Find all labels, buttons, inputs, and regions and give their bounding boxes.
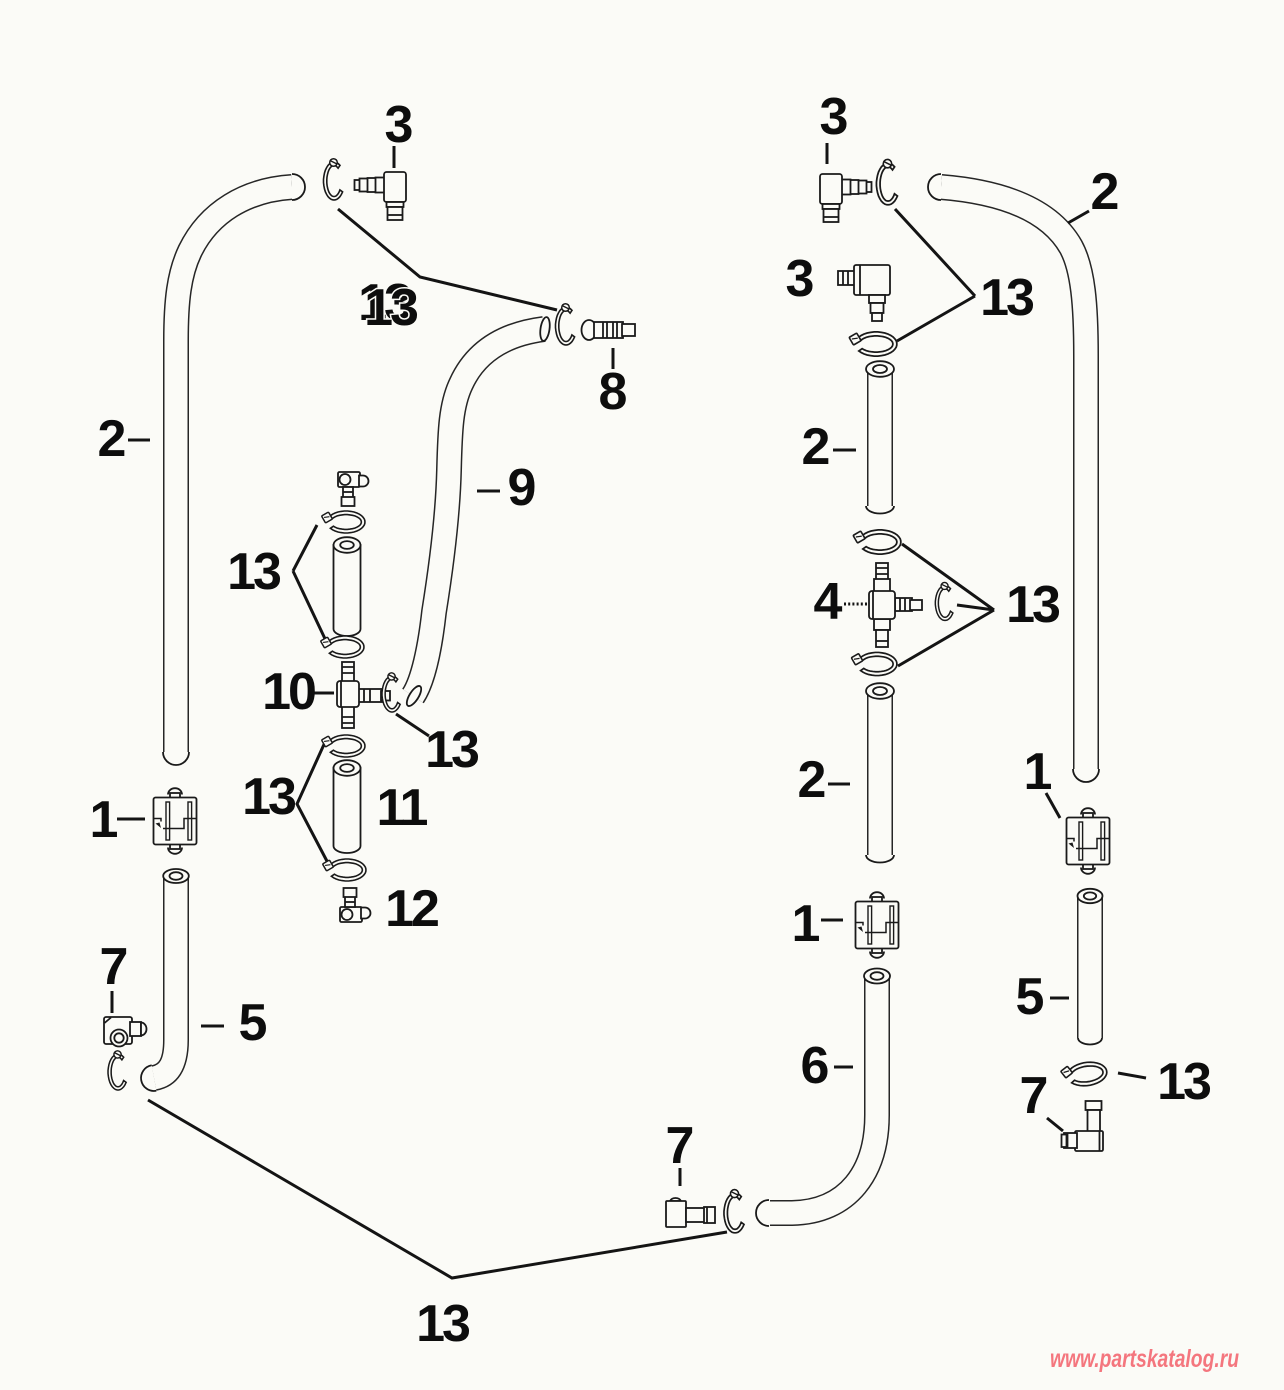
svg-text:1: 1 xyxy=(1024,743,1053,801)
svg-text:3: 3 xyxy=(385,96,414,154)
svg-text:6: 6 xyxy=(801,1037,830,1095)
svg-text:2: 2 xyxy=(98,410,127,468)
svg-text:9: 9 xyxy=(508,459,537,517)
svg-text:5: 5 xyxy=(1016,968,1045,1026)
svg-text:3: 3 xyxy=(820,88,849,146)
svg-text:7: 7 xyxy=(100,938,129,996)
svg-text:13: 13 xyxy=(1157,1053,1211,1111)
svg-text:1: 1 xyxy=(792,895,821,953)
svg-text:7: 7 xyxy=(1020,1067,1049,1125)
svg-text:13: 13 xyxy=(227,543,281,601)
svg-text:2: 2 xyxy=(1091,163,1120,221)
svg-text:8: 8 xyxy=(599,363,628,421)
svg-text:13: 13 xyxy=(364,279,418,337)
svg-text:2: 2 xyxy=(798,751,827,809)
svg-text:3: 3 xyxy=(786,250,815,308)
svg-text:5: 5 xyxy=(239,994,268,1052)
svg-text:13: 13 xyxy=(425,721,479,779)
svg-text:11: 11 xyxy=(377,779,428,837)
svg-text:13: 13 xyxy=(980,269,1034,327)
svg-text:13: 13 xyxy=(242,768,296,826)
svg-text:7: 7 xyxy=(666,1117,695,1175)
svg-text:4: 4 xyxy=(814,573,843,631)
svg-text:13: 13 xyxy=(416,1295,470,1353)
svg-text:10: 10 xyxy=(262,663,315,721)
svg-text:1: 1 xyxy=(90,791,119,849)
svg-text:13: 13 xyxy=(1006,576,1060,634)
svg-text:12: 12 xyxy=(385,880,438,938)
svg-text:2: 2 xyxy=(802,418,831,476)
svg-text:www.partskatalog.ru: www.partskatalog.ru xyxy=(1050,1345,1239,1373)
